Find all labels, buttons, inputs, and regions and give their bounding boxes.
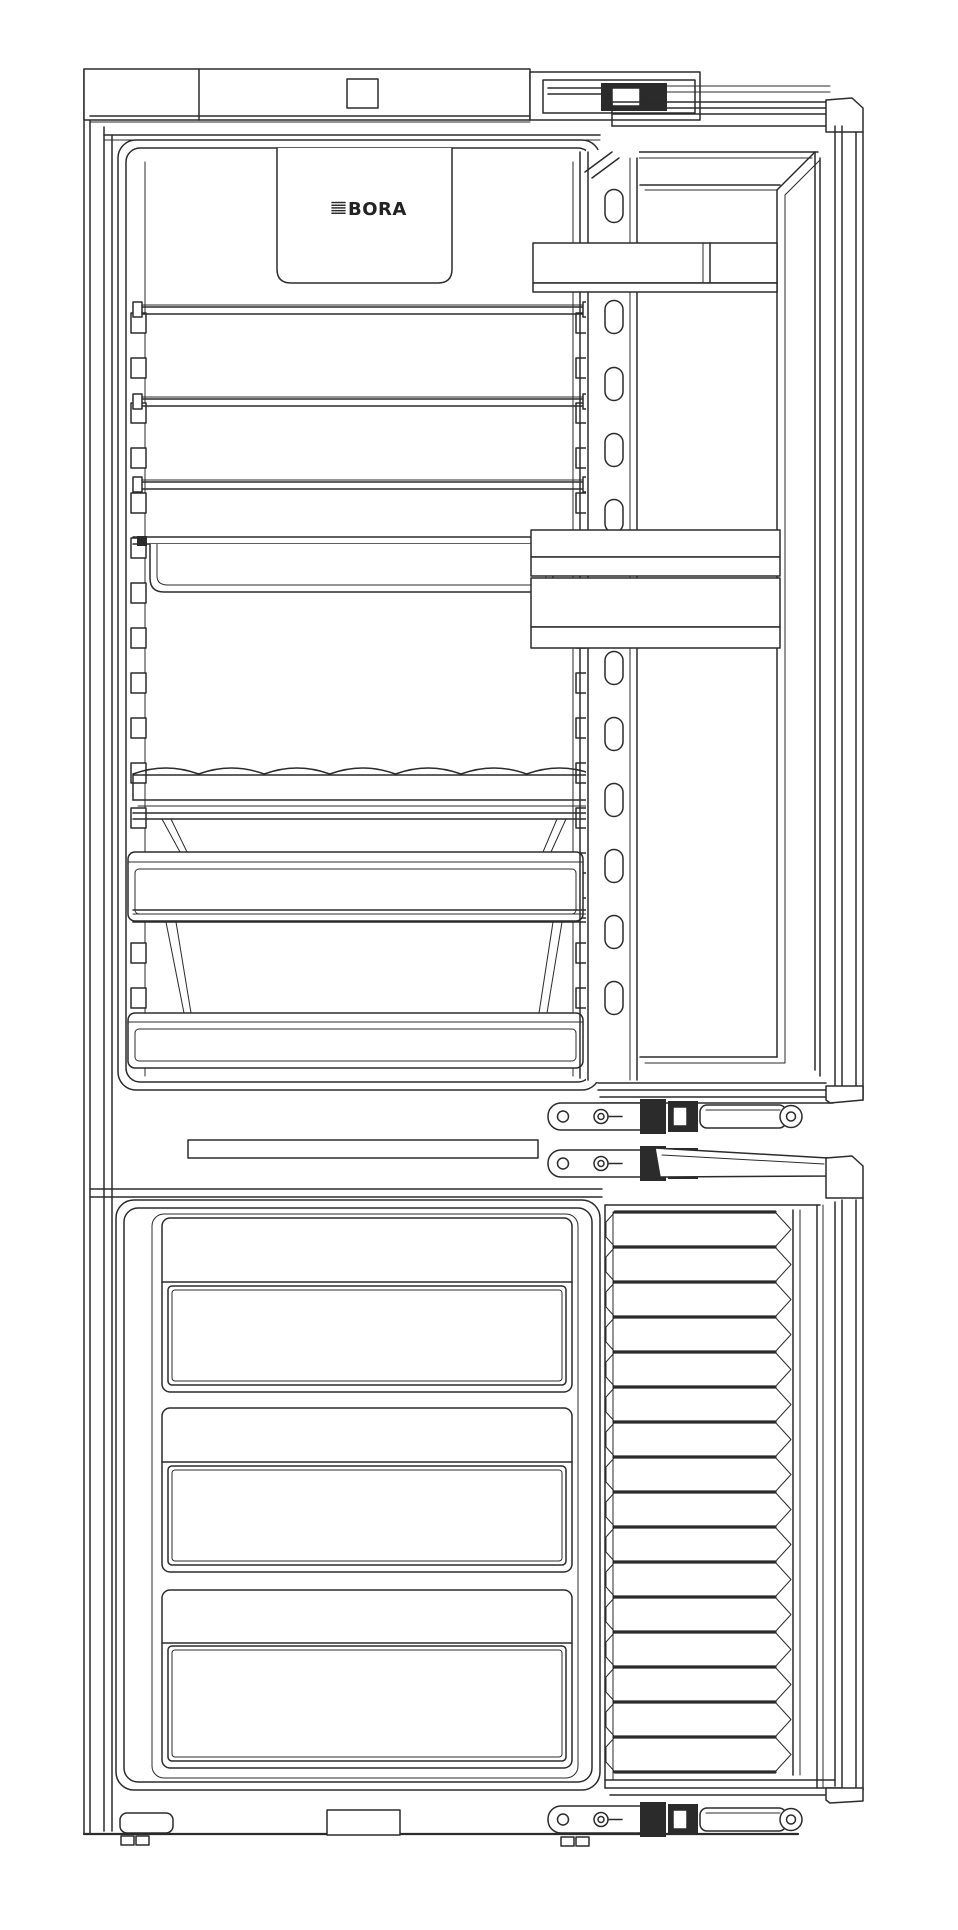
freezer-drawer-2 bbox=[162, 1408, 572, 1572]
compartment-divider bbox=[90, 1140, 602, 1197]
top-slider-hinge bbox=[530, 72, 830, 120]
plinth-cover bbox=[327, 1810, 400, 1835]
drawing-canvas: BORA bbox=[0, 0, 958, 1930]
freezer-door-open bbox=[603, 1198, 863, 1803]
shelf-support-slot bbox=[131, 718, 146, 738]
door-rail-slot bbox=[605, 190, 623, 223]
shelf-support-slot bbox=[131, 358, 146, 378]
shelf-support-slot bbox=[131, 628, 146, 648]
door-bottom-edge-cap bbox=[826, 1086, 863, 1103]
shelf-support-slot bbox=[131, 808, 146, 828]
freezer-drawer-3 bbox=[162, 1590, 572, 1768]
door-rail-slot bbox=[605, 916, 623, 949]
door-top-edge-cap bbox=[826, 98, 863, 132]
door-rail-slot bbox=[605, 784, 623, 817]
shelf-support-slot bbox=[131, 943, 146, 963]
door-bin-1 bbox=[533, 243, 777, 292]
door-rail-slot bbox=[605, 718, 623, 751]
control-panel: BORA bbox=[277, 148, 452, 283]
brand-logo-text: BORA bbox=[348, 199, 407, 220]
refrigerator-technical-drawing: BORA bbox=[0, 0, 958, 1930]
freezer-door-top-cap bbox=[826, 1156, 863, 1198]
bottom-slider-hinge bbox=[548, 1802, 802, 1837]
pullout-tray bbox=[133, 536, 592, 592]
door-rail-slot bbox=[605, 301, 623, 334]
freezer-door-bottom-cap bbox=[826, 1788, 863, 1803]
door-rail-slot bbox=[605, 434, 623, 467]
door-rail-slot bbox=[605, 368, 623, 401]
door-bin-3 bbox=[531, 578, 780, 648]
door-rail-slot bbox=[605, 982, 623, 1015]
shelf-support-slot bbox=[131, 448, 146, 468]
shelf-support-slot bbox=[131, 583, 146, 603]
door-bin-2 bbox=[531, 530, 780, 576]
door-rail-slot bbox=[605, 850, 623, 883]
plinth-vent bbox=[120, 1813, 173, 1833]
shelf-support-slot bbox=[131, 493, 146, 513]
leveling-foot bbox=[561, 1837, 589, 1846]
shelf-support-slot bbox=[131, 673, 146, 693]
divider-vent-slot bbox=[188, 1140, 538, 1158]
middle-hinge-upper bbox=[548, 1099, 802, 1134]
freezer-drawer-1 bbox=[162, 1218, 572, 1392]
shelf-support-slot bbox=[131, 988, 146, 1008]
freezer-door-top-slab bbox=[655, 1148, 834, 1177]
top-vent-switch bbox=[347, 79, 378, 108]
door-rail-slot bbox=[605, 500, 623, 533]
middle-hinge-lower bbox=[548, 1146, 863, 1198]
leveling-foot bbox=[121, 1836, 149, 1845]
door-rail-slot bbox=[605, 652, 623, 685]
